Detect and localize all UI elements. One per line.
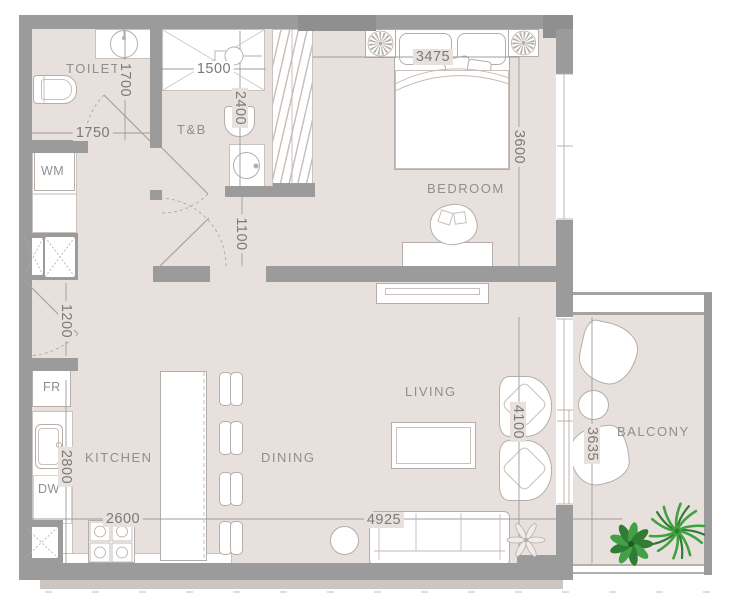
dim-kitchen-width: 2600 (103, 511, 143, 527)
wall-toilet-bottom (19, 140, 88, 153)
kitchen-island (160, 371, 207, 561)
room-label-tb: T&B (177, 122, 207, 137)
wall-top-column (298, 15, 376, 31)
dim-entry-width: 1200 (58, 301, 74, 341)
dim-living-width: 4925 (364, 512, 404, 528)
wall-entry-block (20, 358, 78, 371)
wall-bottom (19, 563, 573, 580)
tv (385, 288, 480, 295)
balcony-table (578, 390, 609, 420)
dim-hall-width: 1100 (233, 214, 249, 253)
kitchen-sink-bowl (38, 428, 59, 465)
island-stool (219, 372, 243, 406)
room-label-living: LIVING (405, 384, 457, 399)
island-stool (219, 421, 243, 455)
wall-wardrobe-bottom (273, 183, 315, 195)
room-label-bedroom: BEDROOM (427, 181, 505, 196)
ceiling-diffuser-box (508, 29, 539, 57)
bed-duvet (395, 70, 509, 169)
dim-tb-depth: 2400 (232, 88, 248, 128)
dim-toilet-depth: 1700 (117, 60, 133, 100)
appliance-label-dw: DW (38, 482, 60, 496)
appliance-label-fr: FR (43, 380, 61, 394)
wall-toilet-tb-divider (150, 29, 162, 148)
balcony-window-band (571, 292, 712, 315)
wall-top (19, 15, 565, 29)
wall-balcony-right (704, 293, 712, 575)
island-stool (219, 472, 243, 506)
round-side-table (330, 526, 359, 555)
balcony-sliding-door (557, 317, 573, 507)
toilet-vanity-basin (110, 30, 138, 58)
wall-left (19, 15, 32, 580)
toilet-wc-seat (41, 79, 72, 100)
room-label-dining: DINING (261, 450, 316, 465)
floor-plan: TOILET T&B BEDROOM KITCHEN DINING LIVING… (0, 0, 732, 600)
dim-kitchen-depth: 2800 (58, 447, 74, 487)
balcony-railing (573, 564, 704, 574)
dim-bed-wall-width: 3475 (413, 49, 453, 65)
bedroom-window (557, 72, 573, 222)
wall-tb-stub (150, 190, 162, 200)
island-stool (219, 521, 243, 555)
appliance-label-wm: WM (41, 164, 64, 178)
coffee-table-top (396, 427, 471, 464)
wall-hall (153, 266, 210, 282)
shaft-duct (45, 237, 75, 277)
ceiling-diffuser-box (365, 29, 396, 58)
room-label-toilet: TOILET (66, 61, 120, 76)
room-label-kitchen: KITCHEN (85, 450, 153, 465)
wall-bottom-ledge (40, 580, 563, 589)
dim-living-depth: 4100 (510, 402, 526, 442)
shower-tray (162, 29, 265, 91)
dim-shower-width: 1500 (194, 61, 234, 77)
wall-bedroom-living (266, 266, 573, 282)
dim-toilet-width: 1750 (73, 125, 113, 141)
dim-bedroom-depth: 3600 (511, 127, 527, 167)
room-label-balcony: BALCONY (617, 424, 690, 439)
desk-chair-cushion (453, 211, 467, 225)
wardrobe (272, 29, 313, 186)
dim-balcony-depth: 3635 (584, 424, 600, 464)
tb-sink-basin (233, 152, 260, 179)
wall-right-upper (556, 29, 573, 74)
